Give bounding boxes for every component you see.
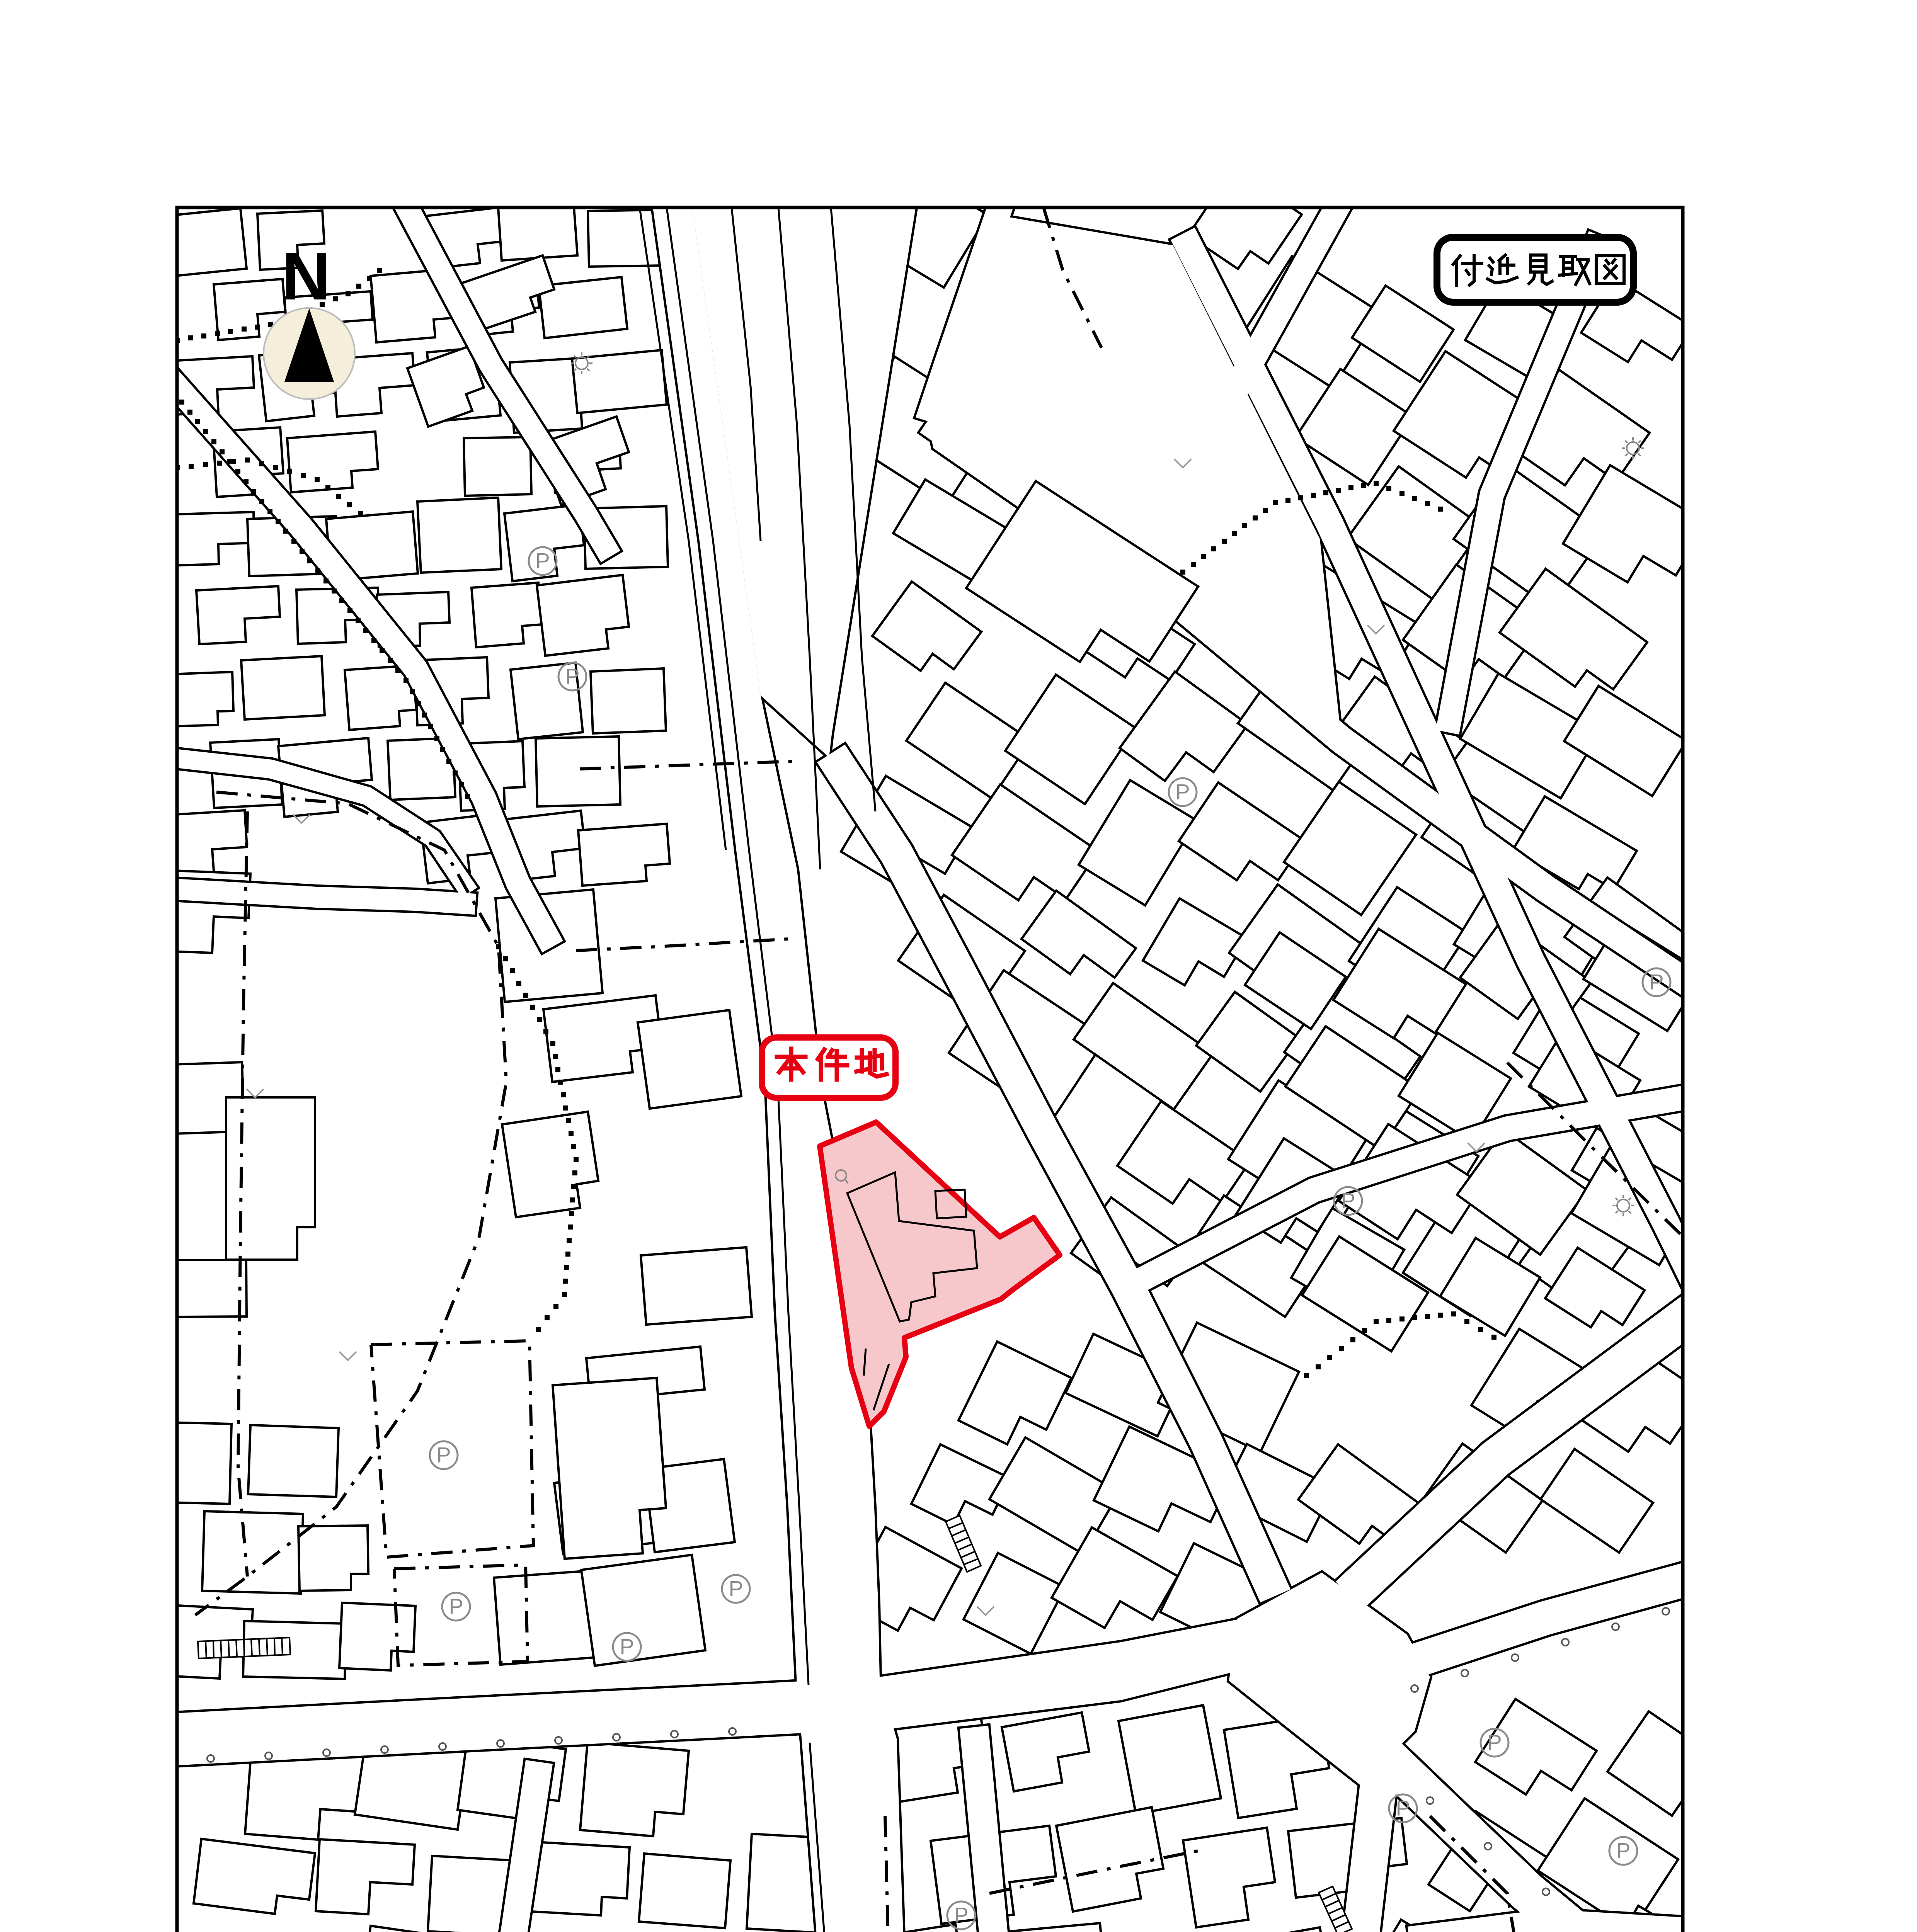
svg-text:N: N [282, 239, 330, 314]
svg-text:P: P [1341, 1189, 1355, 1213]
svg-text:P: P [1175, 780, 1190, 804]
svg-text:P: P [1487, 1730, 1502, 1755]
svg-text:P: P [729, 1577, 743, 1601]
svg-text:P: P [436, 1443, 451, 1467]
svg-text:P: P [1616, 1838, 1630, 1863]
svg-text:P: P [620, 1634, 634, 1659]
svg-text:P: P [535, 549, 550, 573]
svg-text:P: P [565, 664, 579, 689]
svg-text:P: P [1396, 1796, 1410, 1820]
svg-text:P: P [954, 1903, 968, 1927]
svg-text:P: P [1649, 970, 1663, 994]
svg-text:P: P [449, 1594, 463, 1619]
